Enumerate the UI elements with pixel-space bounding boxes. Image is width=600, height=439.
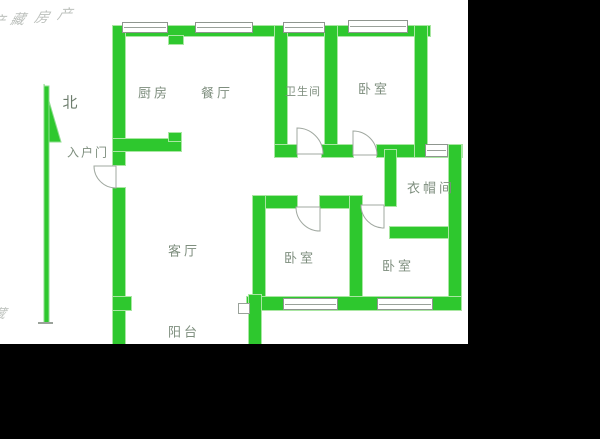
room-label-balcony: 阳台 xyxy=(168,322,200,341)
room-label-bedroom-top: 卧室 xyxy=(358,79,390,98)
room-label-living-room: 客厅 xyxy=(168,241,200,260)
screenshot-root: { "watermark": { "brand": "藏房产", "chars"… xyxy=(0,0,600,439)
room-label-bathroom: 卫生间 xyxy=(285,83,321,99)
doors-and-compass-layer xyxy=(0,0,468,344)
room-label-cloakroom: 衣帽间 xyxy=(407,178,455,197)
room-label-dining: 餐厅 xyxy=(201,83,233,102)
door-arc-entrance xyxy=(94,166,116,188)
door-arc-bedroom-top xyxy=(353,131,377,155)
compass-north-label: 北 xyxy=(62,92,77,113)
door-arc-cloakroom xyxy=(361,205,384,228)
room-label-kitchen: 厨房 xyxy=(138,83,170,102)
room-label-bedroom-left: 卧室 xyxy=(284,248,316,267)
room-label-entrance-door: 入户门 xyxy=(67,144,109,161)
north-arrow-line xyxy=(44,86,49,323)
door-arc-bathroom xyxy=(297,128,323,154)
room-label-bedroom-right: 卧室 xyxy=(382,256,414,275)
floorplan-document: 产 藏 房 产 藏 xyxy=(0,0,468,344)
door-arc-bedroom-left xyxy=(296,207,320,231)
